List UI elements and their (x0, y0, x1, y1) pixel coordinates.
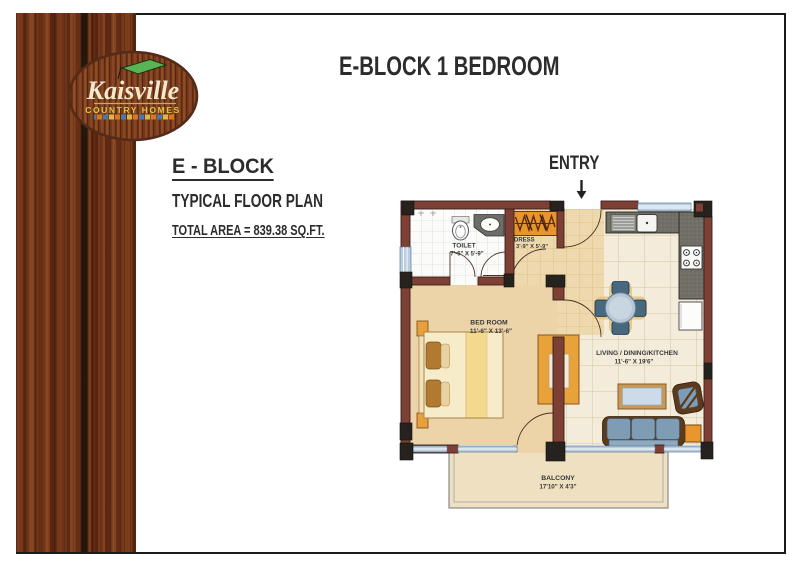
svg-text:7'-6" X 5'-9": 7'-6" X 5'-9" (450, 252, 483, 258)
svg-text:3'-9" X 5'-9": 3'-9" X 5'-9" (516, 244, 548, 250)
svg-text:DRESS: DRESS (514, 238, 535, 244)
svg-text:COUNTRY HOMES: COUNTRY HOMES (85, 105, 180, 115)
svg-text:11'-6" X 13'-6": 11'-6" X 13'-6" (470, 328, 512, 335)
svg-text:11'-6" X 19'6": 11'-6" X 19'6" (615, 359, 654, 366)
svg-text:BALCONY: BALCONY (541, 475, 575, 482)
svg-text:17'10" X 4'3": 17'10" X 4'3" (539, 484, 576, 491)
svg-text:Kaisville: Kaisville (86, 76, 179, 105)
svg-text:LIVING / DINING/KITCHEN: LIVING / DINING/KITCHEN (596, 350, 678, 357)
svg-text:TOILET: TOILET (452, 243, 475, 250)
svg-text:BED ROOM: BED ROOM (470, 320, 508, 327)
